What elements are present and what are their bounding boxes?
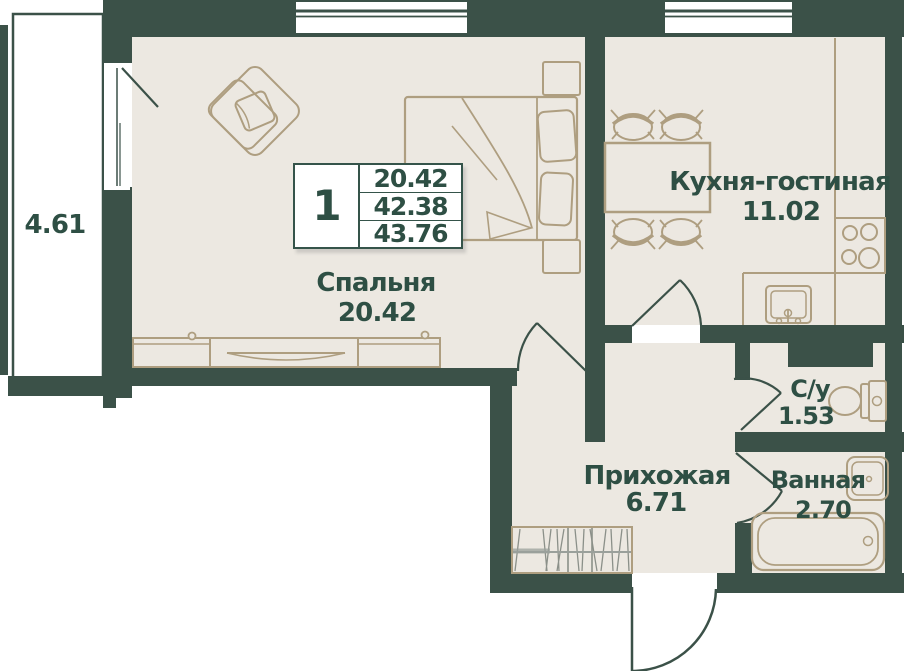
right-wall [885,0,902,593]
balcony-door-window [104,63,130,190]
wardrobe [512,527,632,573]
handle [189,333,196,340]
area-value: 42.38 [360,192,461,219]
hallway-left-wall [490,368,512,573]
stove [835,218,885,273]
bathroom-name-label: Ванная [771,466,865,494]
nightstand [543,240,580,273]
entrance-door [632,587,716,671]
kitchen-name-label: Кухня-гостиная [669,167,891,197]
wc-bath-divider [735,432,904,452]
bedroom-window [296,2,467,36]
bedroom-name-label: Спальня [316,268,435,298]
balcony-outline [13,14,103,378]
kitchen-bottom-wall-right [700,325,904,343]
top-left-block [103,0,132,63]
kitchen-area-label: 11.02 [742,197,820,227]
bottom-wall-left [490,573,632,593]
kitchen-bottom-wall-left [585,325,632,343]
hall-right-block [735,523,752,573]
bedroom-kitchen-partition [585,37,605,442]
hallway-name-label: Прихожая [584,461,731,491]
living-area-value: 20.42 [360,165,461,192]
bedroom-bottom-wall [103,368,517,386]
floorplan: 4.61 Спальня 20.42 Кухня-гостиная 11.02 … [0,0,904,671]
left-wall-foot [103,386,116,408]
total-area-value: 43.76 [360,220,461,247]
kitchen-window [665,2,792,36]
wc-name-label: С/у [790,375,831,403]
bottom-wall-right [717,573,904,593]
nightstand [543,62,580,95]
bathroom-area-label: 2.70 [795,496,851,524]
left-wall [103,187,132,398]
vent-shaft [788,343,873,367]
info-table: 1 20.42 42.38 43.76 [293,163,463,249]
handle [422,332,429,339]
rooms-count: 1 [295,165,360,247]
hall-right-stub [735,343,750,380]
bedroom-area-label: 20.42 [338,298,416,328]
balcony-area-label: 4.61 [25,210,86,240]
balcony-outer-wall [0,25,8,375]
floorplan-svg: 4.61 Спальня 20.42 Кухня-гостиная 11.02 … [0,0,904,671]
wc-area-label: 1.53 [778,402,834,430]
hallway-area-label: 6.71 [626,488,687,518]
